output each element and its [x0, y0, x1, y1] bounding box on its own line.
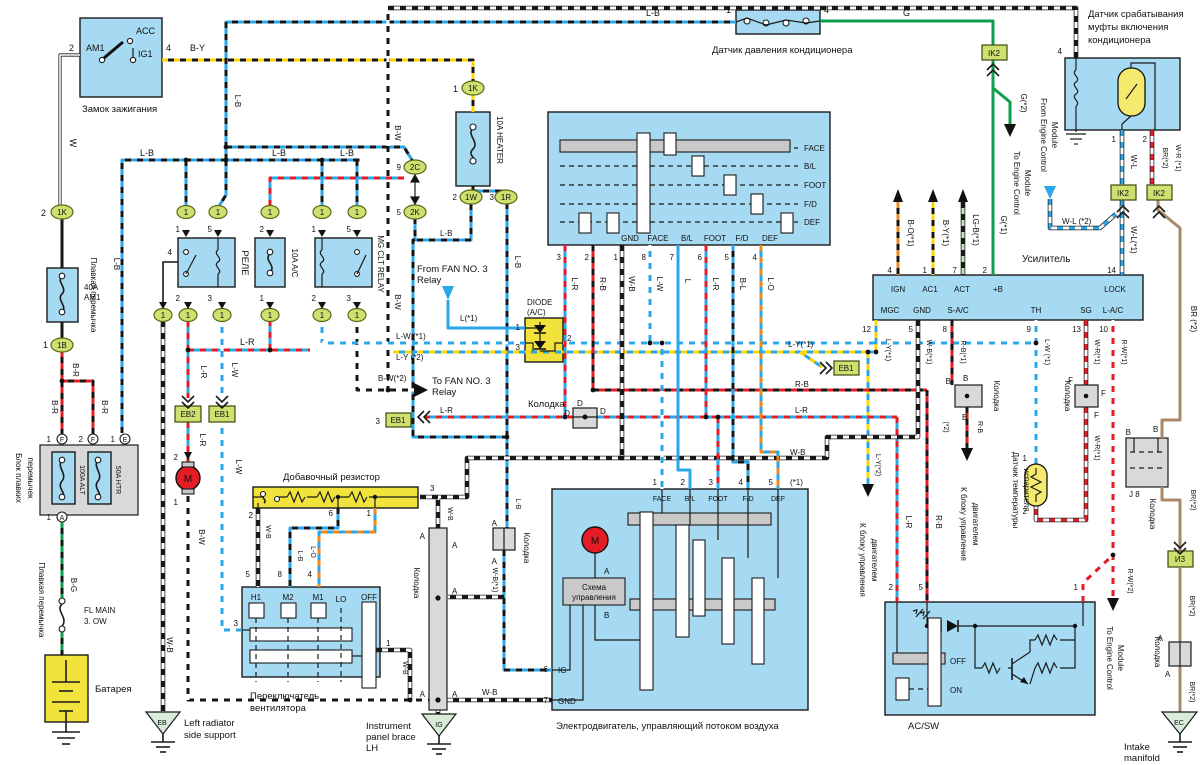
- kolodka-j8-caption: Колодка: [1148, 499, 1157, 530]
- pin-a-letter: A: [60, 515, 65, 522]
- panel-row-bl: B/L: [804, 162, 817, 171]
- fs-bar-2: [250, 650, 352, 663]
- amp-pin-ign: IGN: [891, 285, 905, 294]
- mg-clt-relay-box: [315, 238, 372, 287]
- wire-br-2: [1162, 487, 1180, 551]
- pin-e-letter: E: [123, 437, 128, 444]
- resistor-caption: Добавочный резистор: [283, 472, 380, 483]
- to-fan-text-1: To FAN NO. 3: [432, 376, 491, 387]
- connector-1k-a-label: 1K: [468, 84, 478, 93]
- fuse-end: [95, 494, 101, 500]
- amp-pin-mgc: MGC: [881, 306, 900, 315]
- connector-eb1c-label: EB1: [838, 364, 854, 373]
- relay-pin2: 2: [176, 294, 181, 303]
- mot-def: DEF: [771, 496, 785, 503]
- connector-1k-label: 1K: [57, 208, 67, 217]
- arrow-r-b2: [961, 448, 973, 461]
- oval-1: 1: [161, 311, 166, 320]
- connector-2c-label: 2C: [410, 163, 420, 172]
- label-r-w2: R-W(*2): [1126, 568, 1133, 593]
- connector-i3-label: И3: [1175, 555, 1186, 564]
- m-motor-letter: M: [184, 474, 192, 485]
- amp-num-7: 7: [953, 266, 958, 275]
- mot-slider-1: [640, 512, 653, 690]
- pressure-caption: Датчик давления кондиционера: [712, 45, 853, 56]
- panel-wire-lw: L-W: [655, 277, 664, 292]
- battery-ground: [52, 722, 80, 744]
- fuse-end: [59, 494, 65, 500]
- fs-pin3: 3: [234, 619, 239, 628]
- kolodka-b-pin: B: [946, 377, 951, 386]
- mot-foot: FOOT: [708, 496, 728, 503]
- ig-caption-2: panel brace: [366, 732, 416, 743]
- kolodka-strip: [429, 528, 447, 710]
- label-l-y2b: L-Y(*2): [874, 454, 881, 476]
- ignition-caption: Замок зажигания: [82, 104, 157, 115]
- oval-1: 1: [268, 208, 273, 217]
- from-ecm-2: Module: [1050, 122, 1059, 149]
- wire-res-m1: [319, 508, 375, 587]
- clutch-caption-2: муфты включения: [1088, 22, 1168, 33]
- harness-arrow-2c-2k: [411, 175, 419, 204]
- amp-num-13: 13: [1072, 325, 1081, 334]
- label-b-y: B-Y: [190, 43, 205, 53]
- connector-1b-label: 1B: [57, 341, 67, 350]
- panel-slider: [781, 213, 793, 233]
- res-pin2: 2: [249, 511, 254, 520]
- kolodka-f-pin: F: [1101, 389, 1106, 398]
- strip-pin-a: A: [452, 690, 458, 699]
- res-fuse-end: [261, 492, 266, 497]
- to-ecm-top-2: Module: [1023, 170, 1032, 197]
- connector-eb1b-label: EB1: [390, 416, 406, 425]
- wire-fansw-1: [376, 650, 410, 700]
- label-l-r-acsw: L-R: [904, 516, 913, 529]
- res-pin1: 1: [367, 509, 372, 518]
- mg-pin1: 1: [312, 225, 317, 234]
- label-l-r-link: L-R: [240, 337, 255, 347]
- oval-1: 1: [355, 208, 360, 217]
- mot-pin-b: B: [604, 611, 609, 620]
- label-w: W: [68, 139, 78, 148]
- panel-wire-rb: R-B: [598, 277, 607, 291]
- to-ecu-b-2: двигателем: [971, 503, 980, 546]
- arrow-l-y2: [862, 484, 874, 497]
- fuse-heater-caption: 10A HEATER: [495, 116, 504, 164]
- mg-pin2: 2: [312, 294, 317, 303]
- kolodka-strip-caption: Колодка: [412, 568, 421, 599]
- label-l-b-ks: L-B: [514, 499, 521, 510]
- panel-pin-def: DEF: [762, 234, 778, 243]
- wire-b-y: [162, 60, 473, 82]
- clutch-caption-3: кондиционера: [1088, 35, 1151, 46]
- connector-1r-label: 1R: [501, 193, 511, 202]
- label-g: G: [903, 8, 910, 18]
- kolodka-b-pin: B: [963, 374, 968, 383]
- amp-pin-b: +B: [993, 285, 1003, 294]
- ignition-ig1: IG1: [138, 49, 153, 59]
- panel-num-4: 4: [753, 253, 758, 262]
- oval-1: 1: [186, 311, 191, 320]
- mot-ig: IG: [558, 666, 566, 675]
- acsw-on-label: ON: [950, 686, 962, 695]
- to-ecm-bot-1: To Engine Control: [1105, 626, 1114, 690]
- fuse-10a-ac-caption: 10A A/C: [290, 249, 299, 278]
- arrow-lg-b: [958, 189, 968, 202]
- mot-fd: F/D: [742, 496, 753, 503]
- panel-wire-wb: W-B: [627, 276, 636, 291]
- label-l-y1-mgc: L-Y(*1): [884, 339, 891, 361]
- amp-num-14: 14: [1107, 266, 1116, 275]
- label-l-b-6: L-B: [440, 229, 452, 238]
- label-w-b-gnd7: W-B: [482, 688, 497, 697]
- oval-1: 1: [220, 311, 225, 320]
- clutch-caption-1: Датчик срабатывания: [1088, 9, 1184, 20]
- label-l-b-m2: L-B: [296, 551, 303, 562]
- res-fuse-end: [275, 497, 280, 502]
- eb-caption-2: side support: [184, 730, 236, 741]
- pressure-pin1: 1: [726, 5, 731, 15]
- diode-caption-1: DIODE: [527, 298, 552, 307]
- fs-contact-h1: [249, 603, 264, 618]
- arrow-from-fan: [442, 286, 454, 300]
- motor-caption: Электродвигатель, управляющий потоком во…: [556, 721, 779, 732]
- label-l-r-bus1: L-R: [440, 406, 453, 415]
- label-l-w1-th: L-W (*1): [1043, 339, 1050, 365]
- evap-caption-1: Датчик температуры: [1011, 452, 1020, 529]
- fuse-end: [59, 457, 65, 463]
- ks-pin-a: A: [492, 557, 498, 566]
- to-fan-text-2: Relay: [432, 387, 457, 398]
- ks-pin-a: A: [492, 519, 498, 528]
- panel-slider: [579, 213, 591, 233]
- kolodka-a-caption: Колодка: [1153, 637, 1162, 668]
- pin-1w-2: 2: [453, 193, 458, 202]
- panel-num-7: 7: [670, 253, 675, 262]
- ignition-contact-am1: [99, 57, 104, 62]
- pin-1b-1: 1: [43, 340, 48, 350]
- to-ecu-a-2: двигателем: [870, 539, 879, 582]
- fs-off: OFF: [361, 593, 377, 602]
- wire-l-b-ig: [504, 550, 552, 670]
- label-w-b1-ks: W-B(*1): [491, 568, 498, 593]
- mot-num-5: 5: [769, 478, 774, 487]
- fs-m1: M1: [312, 593, 324, 602]
- pin-2c-9: 9: [397, 163, 402, 172]
- clutch-ground: [1066, 134, 1086, 144]
- panel-num-8: 8: [642, 253, 647, 262]
- fuse-ac-pin2: 2: [260, 225, 265, 234]
- fl-main-label-2: 3. OW: [84, 617, 107, 626]
- wire-l-w-fansw: [222, 422, 242, 630]
- wire-l-b-bus: [122, 160, 360, 433]
- amplifier-caption: Усилитель: [1022, 254, 1070, 265]
- panel-row-def: DEF: [804, 218, 820, 227]
- intake-caption-1: Intake: [1124, 742, 1150, 753]
- eb1b-pin3: 3: [376, 417, 381, 426]
- fusible-link-caption-2: Плавкая перемычка: [37, 562, 46, 638]
- m-pin1: 1: [174, 498, 179, 507]
- acsw-pin1: 1: [1074, 583, 1079, 592]
- fuse-end: [59, 598, 65, 604]
- kolodka-small-caption: Колодка: [522, 533, 531, 564]
- amp-num-10: 10: [1099, 325, 1108, 334]
- wire-b-y: [162, 60, 473, 82]
- ground-eb-label: EB: [157, 720, 167, 727]
- mot-slider-2: [676, 525, 689, 637]
- kolodka-f-pin: F: [1094, 411, 1099, 420]
- fs-contact-m2: [281, 603, 296, 618]
- panel-slider: [664, 133, 676, 155]
- label-l-r-bus2: L-R: [795, 406, 808, 415]
- label-l-r-m: L-R: [198, 434, 207, 447]
- mot-slider-4: [722, 558, 734, 644]
- fs-pin1: 1: [386, 639, 391, 648]
- mot-num-7: 7: [544, 696, 549, 705]
- kolodka-j8-box: [1126, 438, 1168, 487]
- amp-pin-lock: LOCK: [1104, 285, 1126, 294]
- label-l-b-2: L-B: [272, 148, 286, 158]
- relay-pin3: 3: [208, 294, 213, 303]
- label-w-b-res: W-B: [446, 507, 453, 521]
- to-ecm-bot-2: Module: [1116, 645, 1125, 672]
- label-l-o-m1: L-O: [309, 546, 316, 558]
- kolodka-b-pin: B: [962, 413, 967, 422]
- m-pin2: 2: [174, 453, 179, 462]
- j8-pin-b: B: [1126, 428, 1131, 437]
- pressure-pin4: 4: [824, 5, 829, 15]
- connector-ik2a-label: IK2: [988, 49, 1001, 58]
- evap-pin2: 2: [1023, 507, 1028, 516]
- wire-res-m1: [319, 508, 375, 587]
- panel-slider: [692, 156, 704, 176]
- connector-ik2b-label: IK2: [1117, 189, 1130, 198]
- oval-1: 1: [184, 208, 189, 217]
- fuse-end: [267, 249, 273, 255]
- fs-lo: LO: [336, 595, 347, 604]
- fuse-end: [59, 626, 65, 632]
- kolodka-d-pin-a: D: [564, 409, 570, 418]
- label-b-w-2: B-W: [393, 294, 402, 310]
- ignition-pin4: 4: [166, 43, 171, 53]
- wire-l-b-2c: [226, 147, 412, 160]
- mot-slider-5: [752, 578, 764, 664]
- kolodka-d-caption: Колодка: [528, 399, 565, 410]
- label-w-r1-top: W-R (*1): [1174, 144, 1181, 171]
- acsw-pin5: 5: [919, 583, 924, 592]
- ground-ig-earth: [427, 736, 451, 754]
- diode-pin1: 1: [516, 323, 521, 332]
- fan-motor-brush: [182, 489, 194, 494]
- kolodka-d-dot: [583, 415, 588, 420]
- label-l-b-7: L-B: [513, 256, 522, 268]
- label-r-b1: R-B(*1): [959, 340, 966, 363]
- pin-e-num: 1: [111, 435, 116, 444]
- strip-pin-a: A: [420, 690, 426, 699]
- acsw-slider: [928, 618, 941, 706]
- to-ecm-top-1: To Engine Control: [1012, 151, 1021, 215]
- pin-1k-2: 2: [41, 208, 46, 218]
- label-rb2: R-B: [976, 421, 983, 433]
- mg-contact: [355, 250, 360, 255]
- amp-num-2: 2: [983, 266, 988, 275]
- acsw-on-contact: [896, 678, 909, 700]
- panel-row-foot: FOOT: [804, 181, 826, 190]
- wire-br-1: [1158, 200, 1180, 438]
- evap-pin1: 1: [1023, 454, 1028, 463]
- fs-off-slider: [362, 602, 376, 688]
- wiring-diagram-ac-system: 2 AM1 ACC IG1 4 B-Y Замок зажигания W 2 …: [0, 0, 1200, 765]
- evap-caption-2: испарителя: [1022, 469, 1031, 512]
- clutch-pin2: 2: [1143, 135, 1148, 144]
- ig-caption-3: LH: [366, 743, 378, 754]
- amp-pin-sg: SG: [1080, 306, 1092, 315]
- amp-pin-sac: S-A/C: [947, 306, 969, 315]
- wire-fansw-1: [376, 650, 410, 700]
- kolodka-d-pin-b: D: [577, 399, 583, 408]
- res-pin6: 6: [329, 509, 334, 518]
- pin-f1-num: 1: [47, 435, 52, 444]
- panel-row-fd: F/D: [804, 200, 817, 209]
- fs-pin4: 4: [308, 570, 313, 579]
- oval-1: 1: [355, 311, 360, 320]
- wire-fansw-1: [376, 650, 410, 700]
- fuse-end: [267, 270, 273, 276]
- label-w-l: W-L: [1129, 155, 1138, 170]
- j8-label: J 8: [1129, 490, 1140, 499]
- to-ecu-b-1: К блоку управления: [959, 487, 968, 561]
- pin-f2-num: 2: [79, 435, 84, 444]
- ig-caption-1: Instrument: [366, 721, 411, 732]
- mot-num-3: 3: [709, 478, 714, 487]
- fs-m2: M2: [282, 593, 294, 602]
- wire-l-w-fansw: [222, 422, 242, 630]
- wire-g: [820, 21, 993, 45]
- fs-bar-1: [250, 628, 352, 641]
- kolodka-f-caption: Колодка: [1063, 381, 1072, 412]
- arrow-b-o: [893, 189, 903, 202]
- kolodka-b-caption: Колодка: [992, 381, 1001, 412]
- clutch-pin4: 4: [1058, 47, 1063, 56]
- panel-pin-gnd: GND: [621, 234, 639, 243]
- label-l-r-eb2: L-R: [199, 366, 208, 379]
- kolodka-d-pin-c: D: [600, 407, 606, 416]
- from-fan-text-1: From FAN NO. 3: [417, 264, 488, 275]
- label-l-w-eb1: L-W: [230, 363, 239, 378]
- label-r-b-bus: R-B: [795, 380, 809, 389]
- label-w-r1-b: W-R(*1): [1093, 435, 1100, 460]
- kolodka-b-dot: [965, 394, 970, 399]
- intake-caption-2: manifold: [1124, 753, 1160, 764]
- panel-num-3: 3: [557, 253, 562, 262]
- fs-h1: H1: [251, 593, 262, 602]
- panel-row-face: FACE: [804, 144, 825, 153]
- label-br2-c: BR(*2): [1188, 595, 1195, 616]
- ground-ec-label: EC: [1174, 720, 1184, 727]
- label-l-b-1: L-B: [140, 148, 154, 158]
- label-l1: L(*1): [460, 314, 478, 323]
- fuse-end: [59, 273, 65, 279]
- arrow-to-fan: [414, 383, 428, 397]
- wire-l-b-bus: [122, 160, 360, 433]
- label-b-r-2: B-R: [50, 400, 59, 414]
- panel-num-5: 5: [725, 253, 730, 262]
- amp-num-4: 4: [888, 266, 893, 275]
- amp-pin-act: ACT: [954, 285, 970, 294]
- wire-w: [60, 55, 80, 206]
- label-br2-a: BR (*2): [1189, 306, 1198, 333]
- amp-num-5: 5: [909, 325, 914, 334]
- ground-ig-label: IG: [435, 722, 442, 729]
- panel-pin-bl: B/L: [681, 234, 694, 243]
- fl-main-label-1: FL MAIN: [84, 606, 115, 615]
- oval-1: 1: [320, 311, 325, 320]
- fuse-end: [59, 309, 65, 315]
- fs-contact-m1: [311, 603, 326, 618]
- label-b-w-m: B-W: [197, 529, 206, 545]
- fs-pin5: 5: [246, 570, 251, 579]
- ignition-acc: ACC: [136, 26, 156, 36]
- j8-pin-b: B: [1153, 425, 1158, 434]
- amp-num-1: 1: [923, 266, 928, 275]
- arrow-g2: [1004, 124, 1016, 137]
- mot-num-2: 2: [681, 478, 686, 487]
- panel-wire-l: L: [683, 279, 692, 284]
- ignition-am1: AM1: [86, 43, 105, 53]
- amp-pin-gnd: GND: [913, 306, 931, 315]
- connector-ik2c-label: IK2: [1153, 189, 1166, 198]
- acsw-caption: AC/SW: [908, 721, 939, 732]
- ignition-contact-acc: [127, 38, 132, 43]
- amp-pin-ac1: AC1: [922, 285, 938, 294]
- label-l-y1: L-Y(*1): [788, 340, 814, 349]
- amp-num-12: 12: [862, 325, 871, 334]
- pin-f2-letter: F: [91, 437, 95, 444]
- mot-pin-a: A: [604, 567, 610, 576]
- ground-eb-earth: [151, 734, 175, 752]
- pin-1k-1: 1: [453, 84, 458, 94]
- fuse-40a-label-b: AM1: [84, 293, 101, 302]
- panel-wire-lr2: L-R: [711, 278, 720, 291]
- mot-face: FACE: [653, 496, 672, 503]
- label-w-b1: W-B(*1): [925, 340, 932, 365]
- pin-f1-letter: F: [60, 437, 64, 444]
- label-b-y1: B-Y(*1): [941, 220, 950, 247]
- ground-ec-earth: [1168, 734, 1192, 752]
- label-b-w2: B-W(*2): [378, 374, 407, 383]
- fuse-end: [470, 158, 476, 164]
- mot-num-4: 4: [739, 478, 744, 487]
- strip-pin-a: A: [420, 532, 426, 541]
- label-l-w1: L-W (*1): [396, 332, 426, 341]
- connector-eb1a-label: EB1: [214, 410, 230, 419]
- label-l-b-5: L-B: [112, 258, 121, 270]
- label-l-b-3: L-B: [340, 148, 354, 158]
- wire-l-r-fuse-top: [270, 178, 404, 206]
- pin-a-num: 1: [47, 513, 52, 522]
- fuse-ac-pin1: 1: [260, 294, 265, 303]
- panel-num-1: 1: [614, 253, 619, 262]
- wire-l-r-fuse-top: [270, 178, 404, 206]
- fuse-block-caption-2: перемычек: [26, 457, 35, 499]
- panel-slider: [724, 175, 736, 195]
- wire-l-b-drop3: [322, 160, 357, 206]
- fl-main-element: [60, 604, 64, 626]
- arrow-b-y: [928, 189, 938, 202]
- chevron-eb1c: [820, 362, 832, 374]
- label-b-g: B-G: [69, 578, 78, 592]
- panel-slider: [751, 194, 763, 214]
